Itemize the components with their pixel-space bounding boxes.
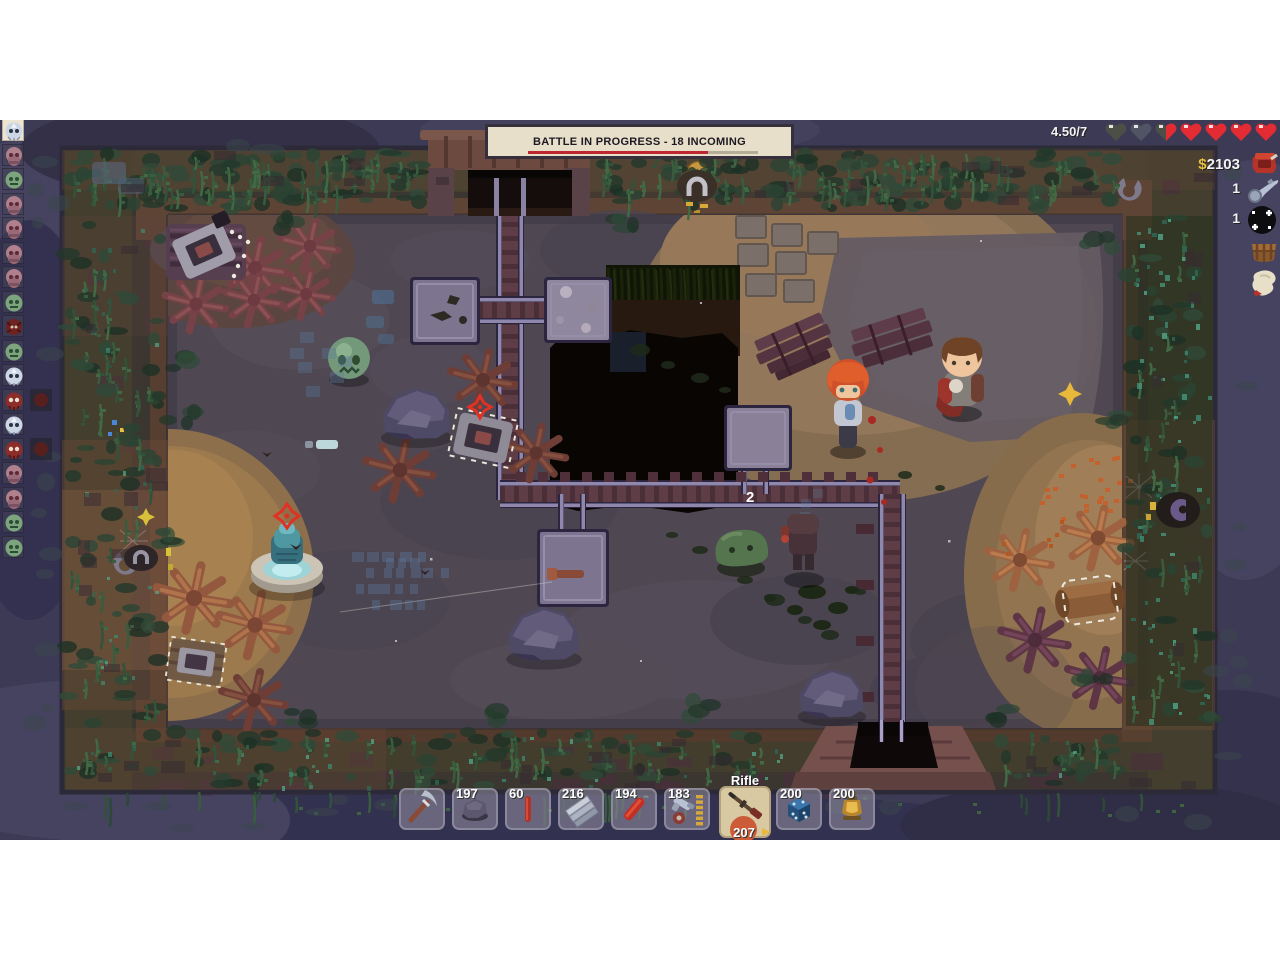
svg-text:2: 2 <box>746 489 754 506</box>
